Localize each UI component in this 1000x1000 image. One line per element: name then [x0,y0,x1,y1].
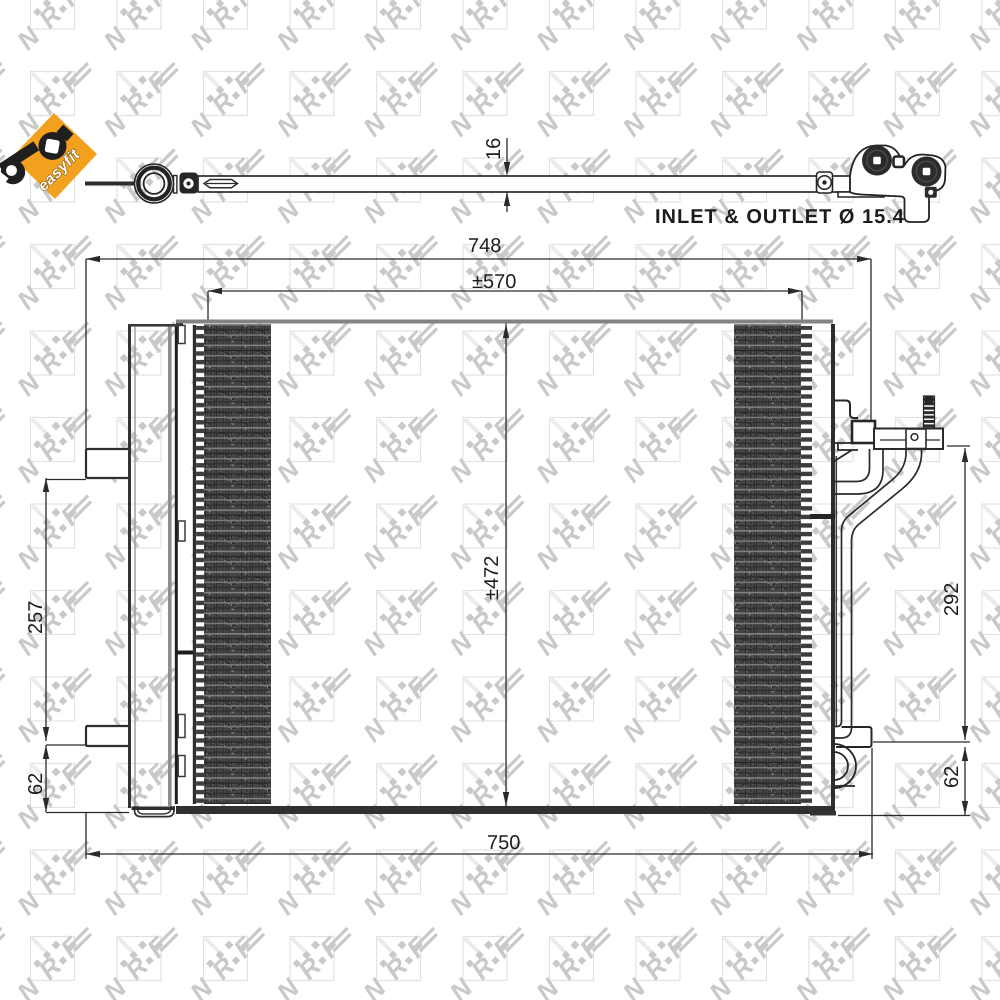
svg-text:292: 292 [941,583,963,616]
svg-text:±570: ±570 [472,271,516,293]
svg-text:62: 62 [25,773,47,795]
svg-text:±472: ±472 [481,556,503,600]
svg-text:INLET & OUTLET Ø 15.4: INLET & OUTLET Ø 15.4 [655,206,905,228]
svg-text:62: 62 [941,766,963,788]
svg-text:750: 750 [487,832,520,854]
svg-text:16: 16 [483,138,505,160]
svg-text:748: 748 [468,235,501,257]
svg-text:257: 257 [25,601,47,634]
